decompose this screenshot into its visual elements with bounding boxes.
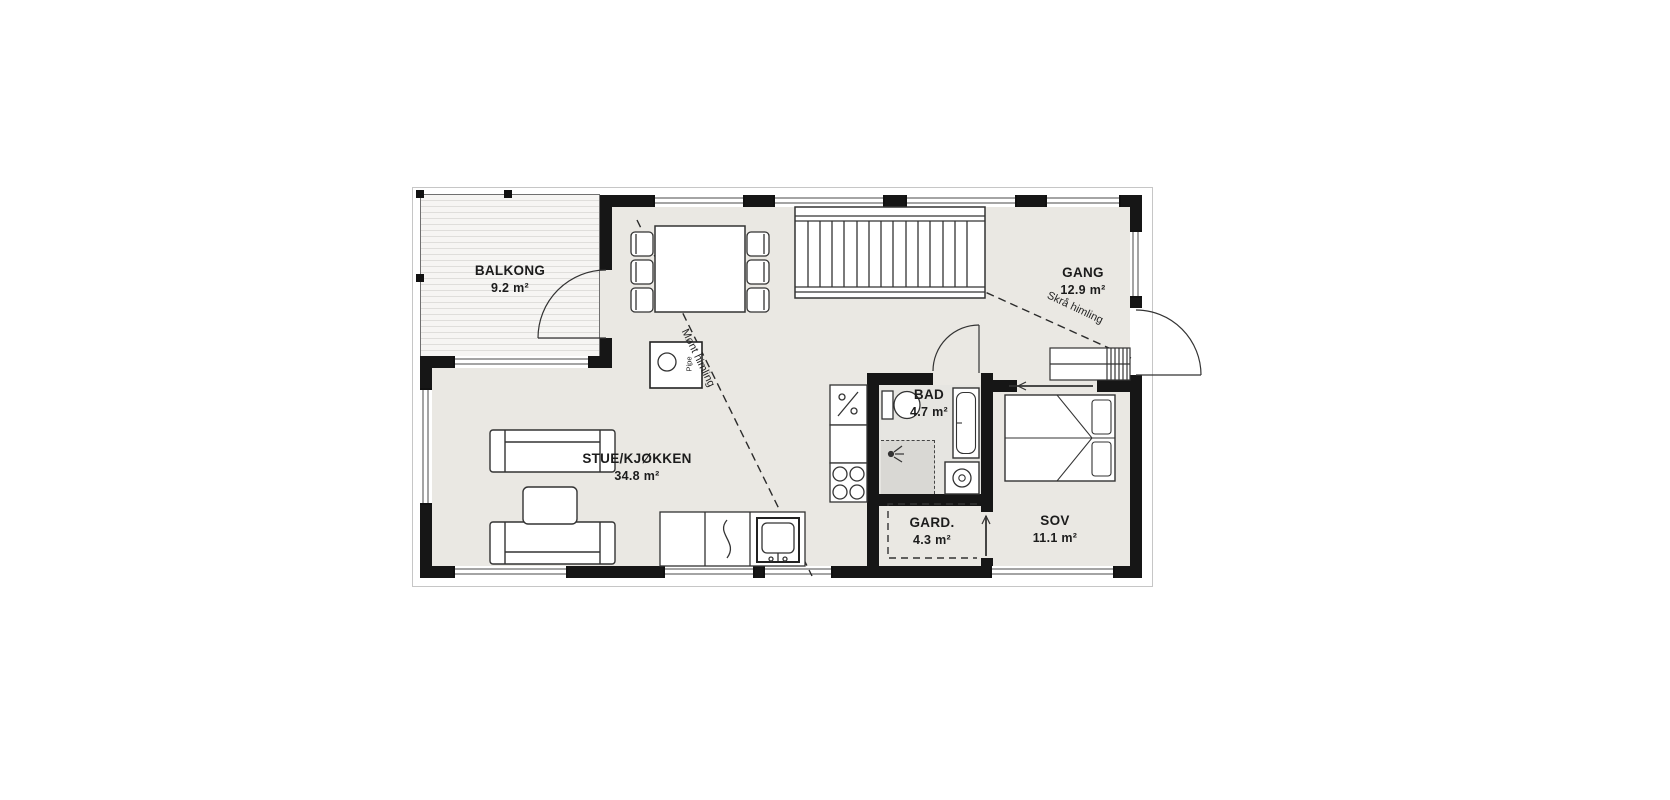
gang-wardrobe [1050,348,1130,380]
kitchen-tall-units [830,385,867,502]
sofa [490,522,615,564]
plan-linework [405,190,1205,590]
room-area: 12.9 m² [1060,282,1105,299]
room-area: 4.7 m² [910,404,948,421]
room-label-gard: GARD. 4.3 m² [910,514,955,549]
balcony-door [538,270,606,338]
kitchen-counter [660,512,805,566]
sov-sliding-door [1009,382,1093,390]
coffee-table [523,487,577,524]
room-name: SOV [1033,512,1078,530]
room-name: BALKONG [475,262,545,280]
room-name: GARD. [910,514,955,532]
entrance-door [1136,310,1201,375]
bathroom-door [933,325,979,373]
room-name: STUE/KJØKKEN [582,450,691,468]
room-area: 9.2 m² [475,280,545,297]
room-label-gang: GANG 12.9 m² [1060,264,1105,299]
room-area: 11.1 m² [1033,530,1078,547]
bed [1005,395,1115,481]
room-name: GANG [1060,264,1105,282]
chimney-label: Pipe [685,356,694,371]
room-label-balkong: BALKONG 9.2 m² [475,262,545,297]
washing-machine [945,462,979,494]
room-area: 34.8 m² [582,468,691,485]
bathtub [953,388,979,458]
room-label-sov: SOV 11.1 m² [1033,512,1078,547]
room-area: 4.3 m² [910,532,955,549]
shower-head-icon [889,446,905,462]
dining-table-set [631,226,769,312]
room-label-stue: STUE/KJØKKEN 34.8 m² [582,450,691,485]
stairs [795,207,985,298]
floor-plan: BALKONG 9.2 m² STUE/KJØKKEN 34.8 m² GANG… [405,190,1205,590]
gard-sliding-door [982,516,990,556]
room-name: BAD [910,386,948,404]
room-label-bad: BAD 4.7 m² [910,386,948,421]
